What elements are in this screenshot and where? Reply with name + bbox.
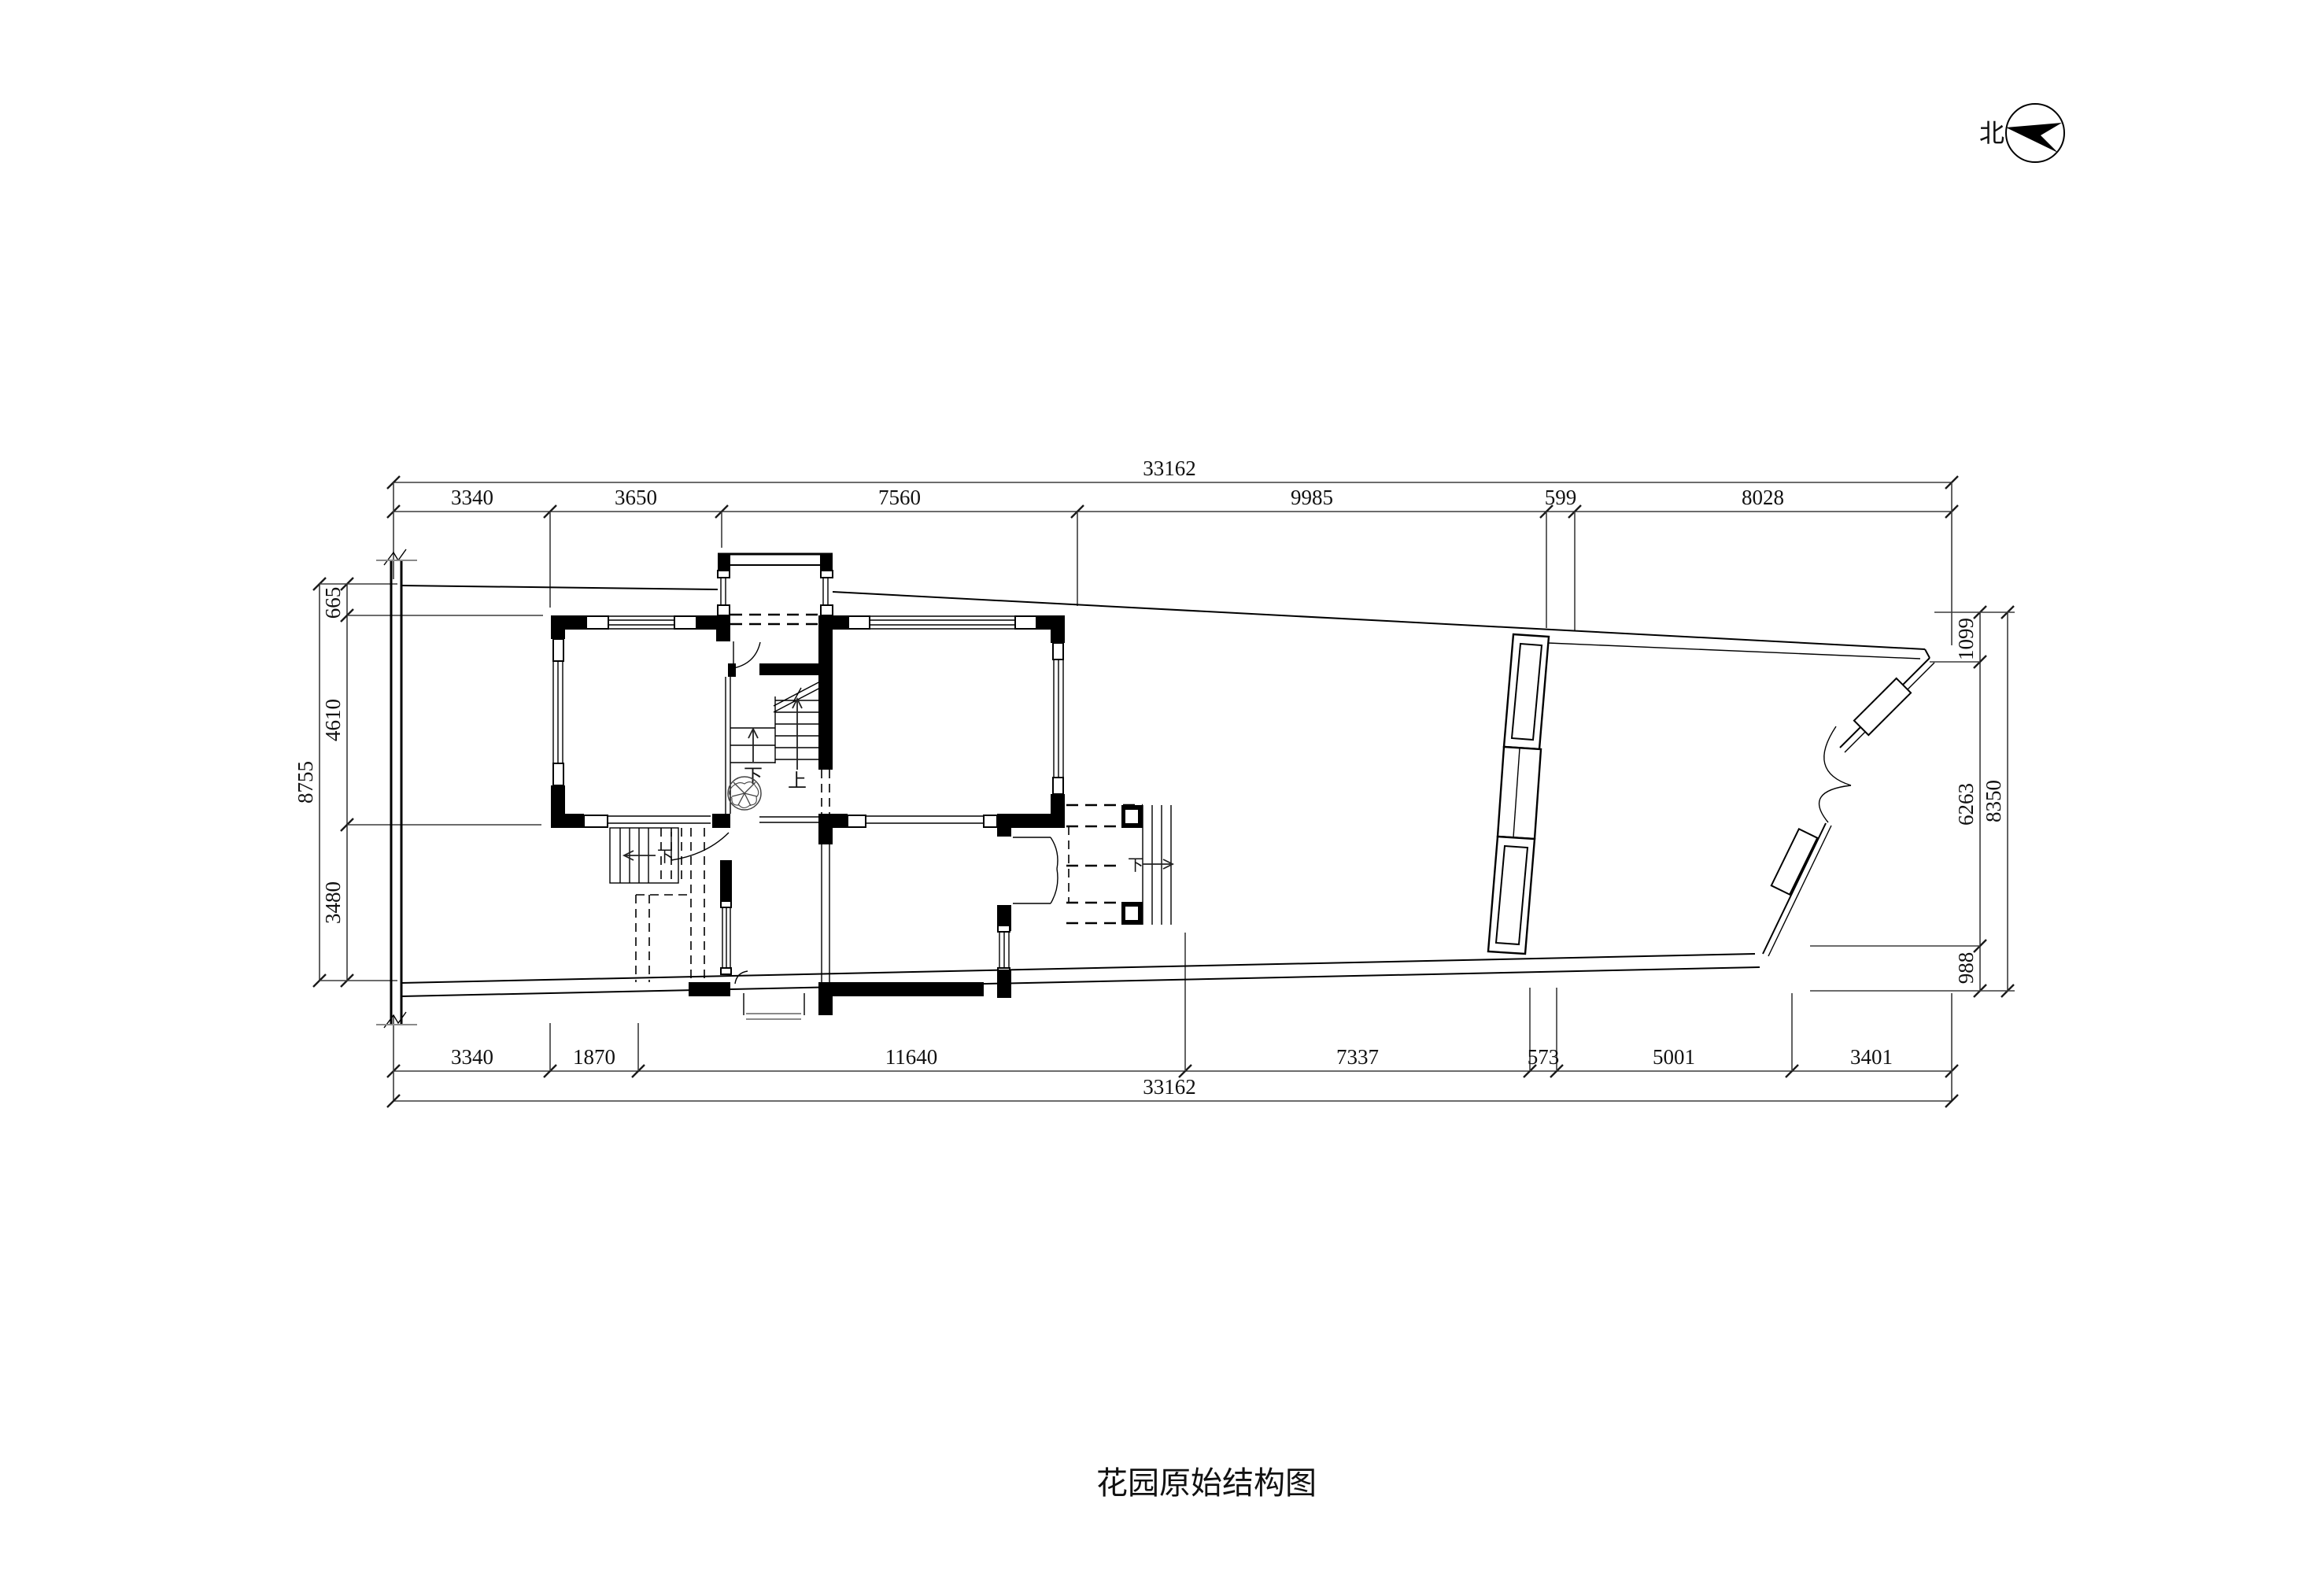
dim-top-seg-3: 9985 <box>1291 486 1333 509</box>
french-door-swing-bottom <box>1051 869 1058 903</box>
lower-door-swing <box>671 833 729 860</box>
drawing-sheet: 北 33162 3340 3650 7560 9985 599 8028 <box>0 0 2309 1596</box>
dim-right-total: 8350 <box>1982 780 2005 822</box>
basement-stair: 下 <box>610 828 704 982</box>
french-door-swing-top <box>1051 837 1058 869</box>
dim-bottom-seg-0: 3340 <box>451 1045 493 1069</box>
dim-top: 33162 3340 3650 7560 9985 599 8028 <box>387 456 1958 645</box>
north-label: 北 <box>1979 119 2004 147</box>
dim-bottom-seg-5: 5001 <box>1653 1045 1695 1069</box>
building: 上 下 <box>551 553 1173 1019</box>
dim-top-seg-0: 3340 <box>451 486 493 509</box>
dim-left: 8755 665 4610 3480 <box>294 578 543 987</box>
entry-porch <box>718 553 833 615</box>
dim-left-seg-1: 4610 <box>321 699 345 741</box>
dim-left-total: 8755 <box>294 761 317 804</box>
dim-top-seg-2: 7560 <box>878 486 921 509</box>
floor-plan-canvas: 北 33162 3340 3650 7560 9985 599 8028 <box>0 0 2309 1596</box>
gate-pier-lower <box>1771 829 1817 894</box>
dim-bottom-total: 33162 <box>1143 1075 1196 1099</box>
terrace-down-label: 下 <box>1128 857 1143 874</box>
terrace: 下 <box>1066 805 1173 925</box>
stair-up-label: 上 <box>788 770 807 792</box>
corner-door-swing <box>735 971 748 984</box>
north-arrow-pointer-icon <box>2006 123 2062 153</box>
east-gate-wall <box>1763 658 1934 956</box>
dim-bottom: 3340 1870 11640 7337 573 5001 3401 33162 <box>387 933 1958 1107</box>
garden-fence <box>1488 634 1549 954</box>
dim-top-seg-4: 599 <box>1545 486 1577 509</box>
dim-right: 1099 6263 988 8350 <box>1810 606 2015 997</box>
hall-door-swing <box>733 642 760 668</box>
dim-left-seg-2: 3480 <box>321 881 345 924</box>
dim-top-seg-1: 3650 <box>615 486 657 509</box>
gate-door-leaf-lower <box>1819 785 1851 822</box>
dim-bottom-seg-4: 573 <box>1528 1045 1560 1069</box>
room-upper-right <box>818 615 1065 828</box>
dim-bottom-seg-6: 3401 <box>1850 1045 1893 1069</box>
wall-break-mark-top <box>384 549 406 565</box>
dim-bottom-seg-1: 1870 <box>573 1045 615 1069</box>
gate-door-leaf-upper <box>1824 726 1851 785</box>
dim-left-seg-0: 665 <box>321 587 345 619</box>
dim-top-total: 33162 <box>1143 456 1196 480</box>
site-boundary <box>376 549 1930 1028</box>
drawing-title: 花园原始结构图 <box>1096 1465 1317 1501</box>
basement-down-label: 下 <box>657 848 673 866</box>
dim-right-seg-0: 1099 <box>1954 618 1978 660</box>
dim-bottom-seg-3: 7337 <box>1336 1045 1379 1069</box>
north-arrow: 北 <box>1979 104 2064 162</box>
dim-right-seg-2: 988 <box>1954 952 1978 985</box>
dim-bottom-seg-2: 11640 <box>885 1045 938 1069</box>
room-lower-right <box>822 826 1058 998</box>
south-gate-pier <box>818 982 833 1015</box>
dim-top-seg-5: 8028 <box>1742 486 1784 509</box>
room-upper-left <box>551 615 736 828</box>
dim-right-seg-1: 6263 <box>1954 783 1978 826</box>
gate-pier-upper <box>1854 678 1911 735</box>
